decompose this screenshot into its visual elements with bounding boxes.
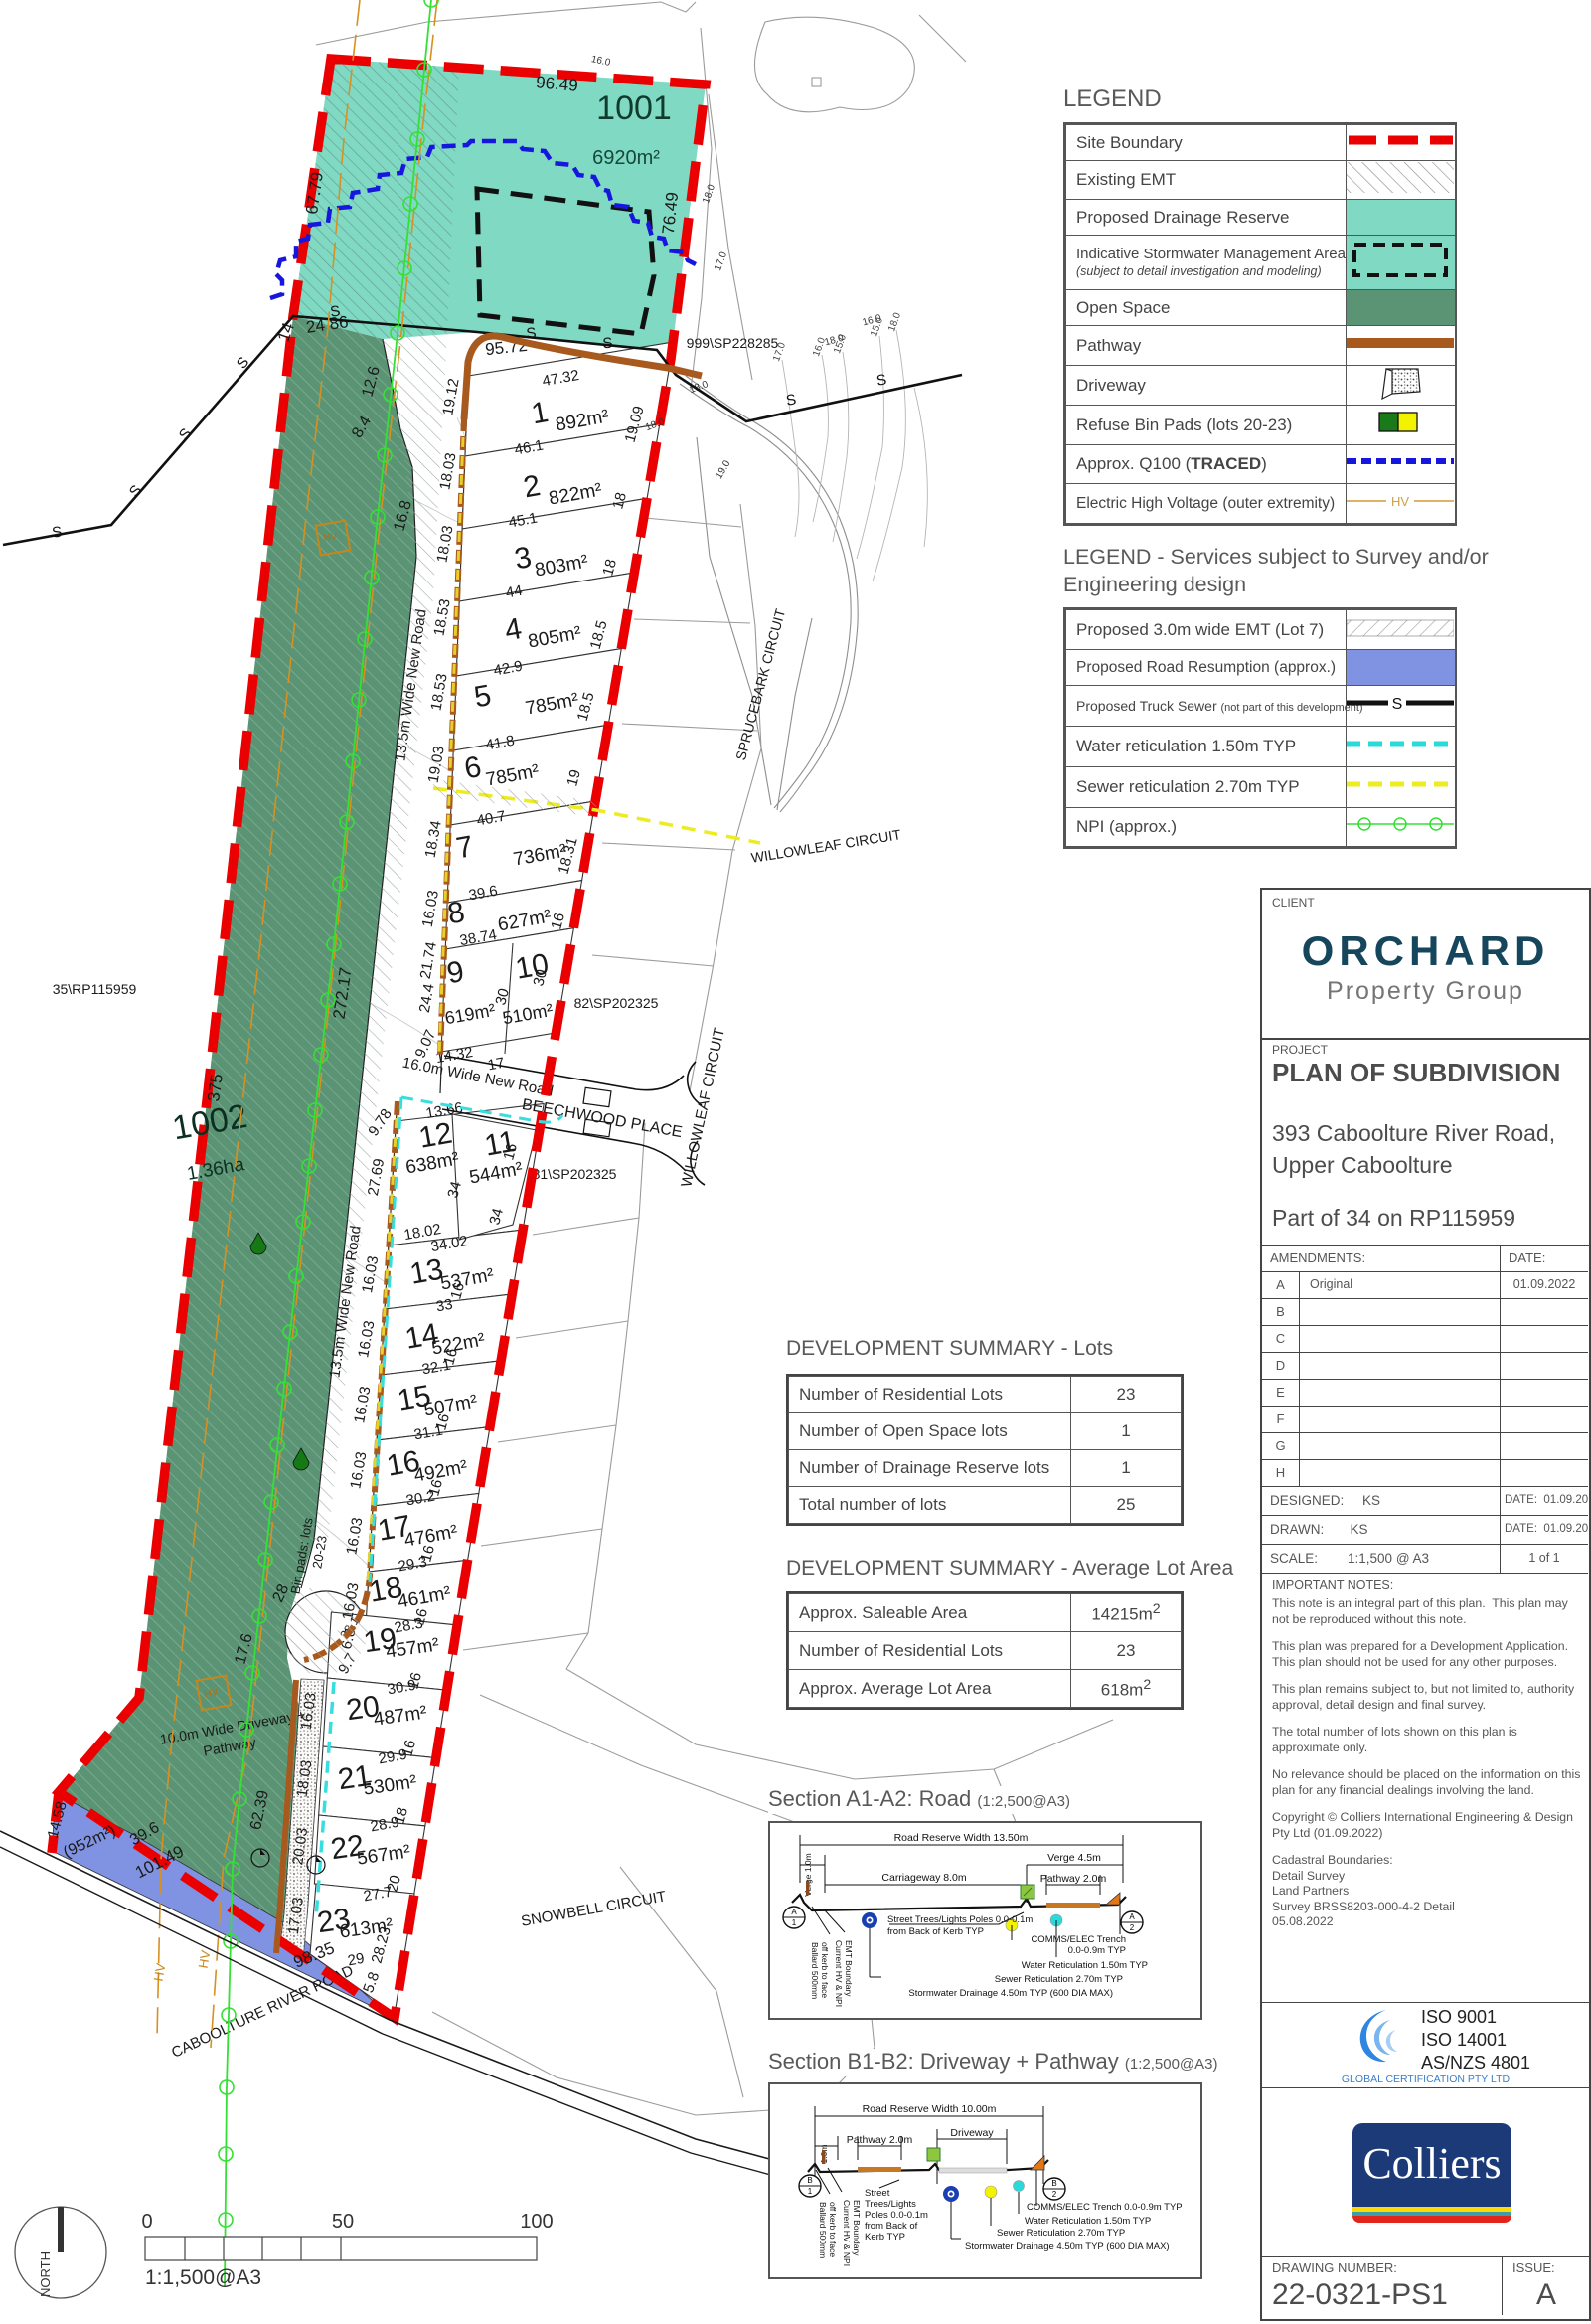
- svg-text:S: S: [234, 354, 252, 373]
- svg-text:16.0: 16.0: [590, 54, 612, 69]
- svg-text:16.03: 16.03: [355, 1319, 378, 1359]
- svg-text:S: S: [176, 425, 195, 444]
- svg-text:Pathway 2.0m: Pathway 2.0m: [1040, 1873, 1107, 1885]
- svg-text:EMT Boundary: EMT Boundary: [844, 1940, 854, 1997]
- svg-text:16.03: 16.03: [347, 1450, 370, 1490]
- svg-text:from Back of: from Back of: [865, 2221, 918, 2232]
- svg-text:Carriageway 8.0m: Carriageway 8.0m: [881, 1872, 966, 1884]
- svg-text:from Back of Kerb TYP: from Back of Kerb TYP: [887, 1926, 984, 1937]
- svg-text:35\RP115959: 35\RP115959: [53, 981, 137, 997]
- svg-text:HV: HV: [196, 1949, 214, 1970]
- svg-text:EMT Boundary: EMT Boundary: [852, 2200, 862, 2256]
- svg-text:S: S: [785, 391, 798, 409]
- svg-text:HV: HV: [151, 1962, 169, 1983]
- svg-text:A: A: [791, 1908, 797, 1916]
- svg-text:Street: Street: [865, 2188, 890, 2199]
- svg-text:B: B: [1051, 2179, 1056, 2188]
- svg-text:COMMS/ELEC Trench: COMMS/ELEC Trench: [1031, 1934, 1126, 1945]
- svg-text:SNOWBELL CIRCUIT: SNOWBELL CIRCUIT: [520, 1888, 668, 1929]
- svg-text:21.74: 21.74: [417, 940, 440, 980]
- svg-text:S: S: [1392, 696, 1403, 713]
- svg-text:NORTH: NORTH: [38, 2251, 53, 2297]
- svg-text:16.03: 16.03: [419, 889, 442, 928]
- svg-text:999\SP228285: 999\SP228285: [687, 335, 779, 351]
- svg-text:2: 2: [1130, 1923, 1135, 1932]
- svg-text:Kerb TYP: Kerb TYP: [865, 2232, 905, 2242]
- svg-text:A: A: [1129, 1912, 1135, 1921]
- svg-text:19.03: 19.03: [425, 745, 448, 784]
- svg-text:S: S: [602, 335, 614, 353]
- svg-text:HV: HV: [1391, 494, 1409, 509]
- svg-text:off kerb to face: off kerb to face: [820, 1942, 830, 1998]
- svg-text:Current HV & NPI: Current HV & NPI: [842, 2200, 852, 2266]
- svg-text:18.53: 18.53: [427, 672, 450, 712]
- svg-text:19.0: 19.0: [714, 458, 732, 481]
- svg-text:375: 375: [204, 1073, 227, 1103]
- svg-text:B: B: [807, 2176, 812, 2185]
- svg-text:Road Reserve Width 10.00m: Road Reserve Width 10.00m: [863, 2103, 997, 2115]
- svg-text:44: 44: [505, 582, 524, 602]
- svg-text:18.53: 18.53: [430, 597, 453, 637]
- svg-text:17.0: 17.0: [713, 250, 729, 272]
- svg-text:Sewer Reticulation 2.70m TYP: Sewer Reticulation 2.70m TYP: [997, 2228, 1125, 2239]
- svg-text:S: S: [126, 482, 145, 501]
- svg-text:S: S: [51, 523, 63, 541]
- svg-text:Road Reserve Width 13.50m: Road Reserve Width 13.50m: [894, 1832, 1029, 1844]
- svg-text:off kerb to face: off kerb to face: [828, 2202, 838, 2257]
- svg-text:96.49: 96.49: [535, 73, 578, 95]
- svg-text:1: 1: [792, 1918, 797, 1927]
- svg-text:S: S: [875, 371, 888, 389]
- svg-text:18.0: 18.0: [701, 183, 717, 205]
- svg-text:18.03: 18.03: [433, 524, 456, 564]
- svg-text:Poles 0.0-0.1m: Poles 0.0-0.1m: [865, 2210, 928, 2221]
- svg-text:16.03: 16.03: [351, 1385, 374, 1424]
- svg-text:82\SP202325: 82\SP202325: [574, 995, 659, 1011]
- svg-text:1:1,500@A3: 1:1,500@A3: [145, 2266, 261, 2289]
- svg-text:Verge 4.5m: Verge 4.5m: [1047, 1852, 1101, 1864]
- svg-text:16.03: 16.03: [359, 1254, 382, 1294]
- svg-text:Water Reticulation 1.50m TYP: Water Reticulation 1.50m TYP: [1022, 1960, 1148, 1971]
- svg-text:WILLOWLEAF CIRCUIT: WILLOWLEAF CIRCUIT: [678, 1026, 728, 1188]
- svg-text:6920m²: 6920m²: [592, 147, 660, 169]
- svg-text:COMMS/ELEC Trench 0.0-0.9m TYP: COMMS/ELEC Trench 0.0-0.9m TYP: [1027, 2202, 1183, 2213]
- svg-text:2: 2: [1052, 2190, 1057, 2199]
- svg-text:Sewer Reticulation 2.70m TYP: Sewer Reticulation 2.70m TYP: [995, 1974, 1123, 1985]
- svg-text:Trees/Lights: Trees/Lights: [865, 2199, 916, 2210]
- svg-text:WILLOWLEAF CIRCUIT: WILLOWLEAF CIRCUIT: [750, 826, 903, 866]
- svg-text:24.4: 24.4: [416, 982, 438, 1014]
- svg-text:18.0: 18.0: [886, 311, 903, 333]
- svg-text:1001: 1001: [596, 89, 672, 127]
- svg-text:0: 0: [141, 2211, 152, 2233]
- svg-text:Street Trees/Lights Poles 0.0-: Street Trees/Lights Poles 0.0-0.1m: [887, 1914, 1033, 1925]
- svg-text:Pathway 2.0m: Pathway 2.0m: [847, 2134, 913, 2146]
- svg-text:Current HV & NPI: Current HV & NPI: [834, 1940, 844, 2007]
- svg-text:81\SP202325: 81\SP202325: [533, 1166, 617, 1182]
- svg-text:Ballard 500mm: Ballard 500mm: [818, 2202, 828, 2258]
- svg-text:Water Reticulation 1.50m TYP: Water Reticulation 1.50m TYP: [1025, 2216, 1151, 2227]
- svg-text:16.03: 16.03: [343, 1516, 366, 1556]
- svg-text:50: 50: [332, 2211, 354, 2233]
- svg-text:Driveway: Driveway: [950, 2127, 994, 2139]
- svg-text:0.0-0.9m TYP: 0.0-0.9m TYP: [1068, 1945, 1126, 1956]
- svg-text:Stormwater Drainage 4.50m TYP: Stormwater Drainage 4.50m TYP (600 DIA M…: [908, 1988, 1113, 1999]
- svg-text:1: 1: [808, 2187, 813, 2196]
- svg-text:Ballard 500mm: Ballard 500mm: [810, 1942, 820, 1999]
- svg-text:100: 100: [520, 2211, 553, 2233]
- svg-text:Stormwater Drainage 4.50m TYP: Stormwater Drainage 4.50m TYP (600 DIA M…: [965, 2241, 1170, 2252]
- svg-text:18.34: 18.34: [422, 819, 445, 859]
